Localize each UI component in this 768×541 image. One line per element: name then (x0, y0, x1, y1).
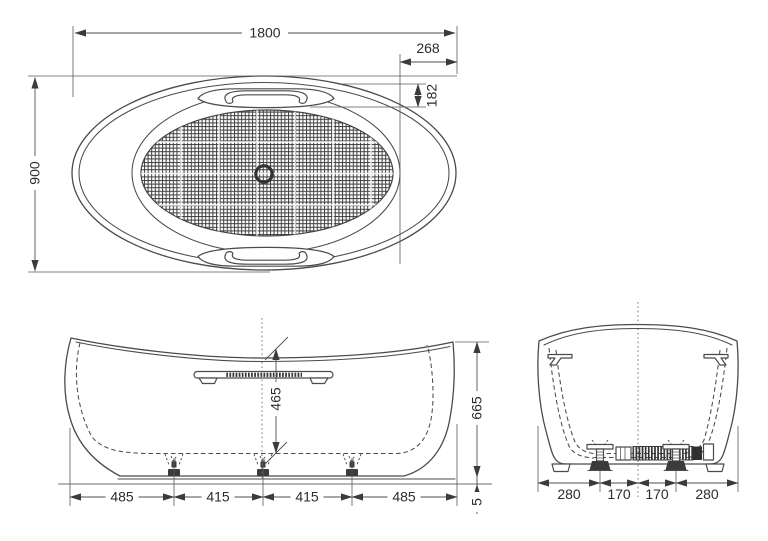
dim-inner-depth-label: 465 (268, 387, 284, 411)
dim-foot-spacing-label: 280 (695, 486, 719, 502)
end-view: 280 170 170 280 (538, 302, 738, 502)
drawing-canvas: 1800 268 182 900 (0, 0, 768, 541)
dim-foot-spacing-label: 415 (295, 489, 319, 505)
dim-length-label: 1800 (249, 25, 280, 41)
bathtub-technical-drawing: 1800 268 182 900 (0, 0, 768, 541)
front-view: 465 665 5 485 (58, 318, 492, 514)
dim-foot-spacing-label: 485 (392, 489, 416, 505)
dim-foot-spacing-label: 485 (110, 489, 134, 505)
dim-foot-spacing-label: 170 (607, 486, 631, 502)
skirt-foot-right (706, 464, 724, 472)
dim-end-inset-label: 268 (416, 40, 440, 56)
top-view: 1800 268 182 900 (27, 25, 458, 273)
tub-floor-texture (139, 108, 395, 238)
front-view-grab-handle (194, 372, 333, 384)
dim-foot-spacing-label: 280 (557, 486, 581, 502)
dim-foot-spacing-label: 415 (206, 489, 230, 505)
dim-handle-recess-label: 182 (424, 84, 440, 108)
dim-foot-spacing-label: 170 (645, 486, 669, 502)
dim-floor-gap-label: 5 (469, 498, 485, 506)
skirt-foot-left (552, 464, 570, 472)
adjustable-foot (587, 440, 613, 471)
inner-basin-dashed (76, 343, 433, 454)
grab-handle-bottom (198, 247, 334, 266)
dim-overall-height-label: 665 (469, 396, 485, 420)
dim-width-label: 900 (27, 161, 43, 185)
grab-handle-top (198, 89, 334, 108)
